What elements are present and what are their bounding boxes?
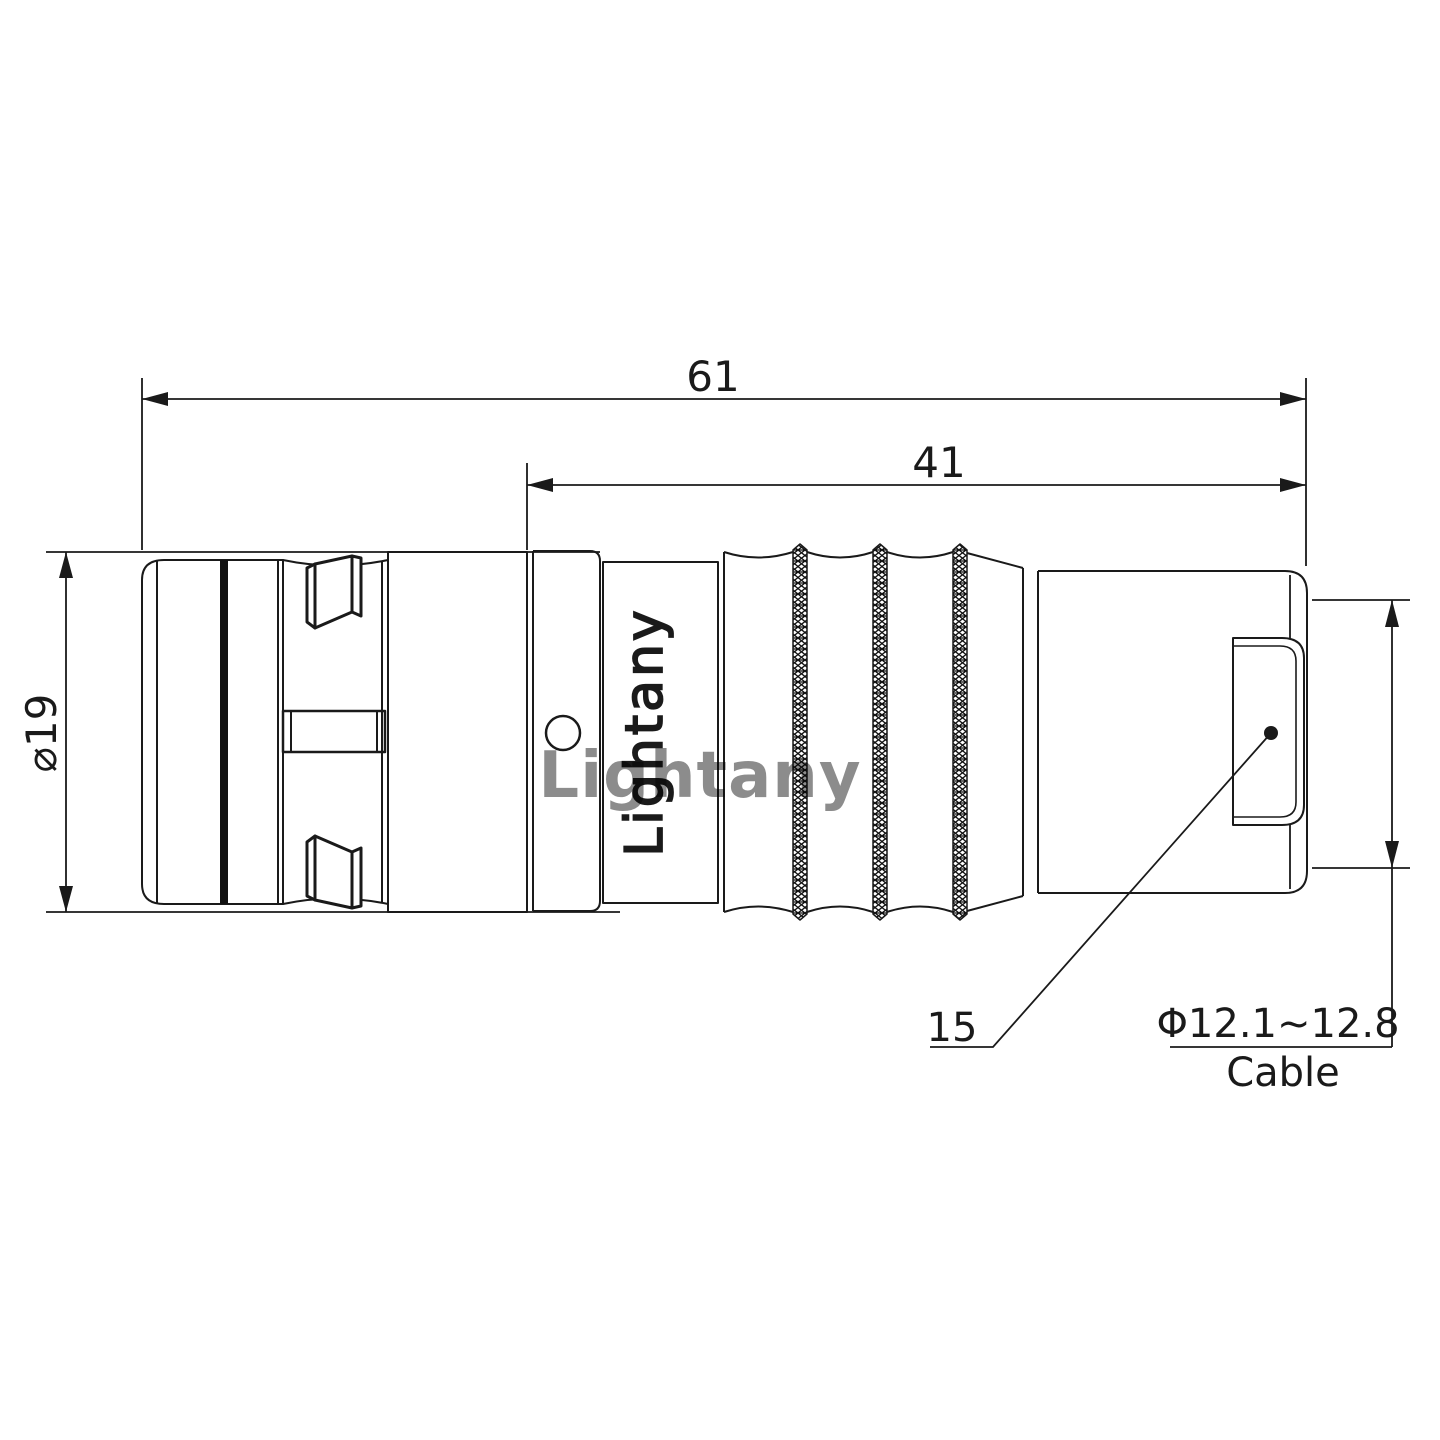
dim-rear-label: 41	[912, 438, 965, 487]
cable-word-label: Cable	[1226, 1050, 1340, 1096]
connector-body	[142, 544, 1307, 920]
part-ref-label: 15	[927, 1005, 978, 1051]
brand-engraving: Lightany	[615, 607, 675, 856]
brand-watermark: Lightany	[538, 739, 861, 813]
knurl-band	[793, 544, 807, 920]
latch-clip-bottom	[307, 836, 361, 908]
knurl-band	[953, 544, 967, 920]
drawing-canvas: Lightany	[0, 0, 1440, 1440]
knurl-band	[873, 544, 887, 920]
mid-sleeve	[382, 551, 600, 912]
black-ring	[220, 560, 228, 904]
dim-overall-label: 61	[686, 352, 739, 401]
leader-part-15	[930, 726, 1278, 1047]
latch-clip-top	[307, 556, 361, 628]
latch-slot	[283, 711, 385, 752]
dimension-overall-length	[142, 378, 1306, 566]
cable-dia-label: Φ12.1~12.8	[1156, 1001, 1399, 1047]
technical-drawing: Lightany	[0, 0, 1440, 1440]
coupling-nut	[142, 560, 283, 904]
dim-diameter-label: ⌀19	[17, 694, 66, 773]
knurl-section	[724, 544, 1038, 920]
